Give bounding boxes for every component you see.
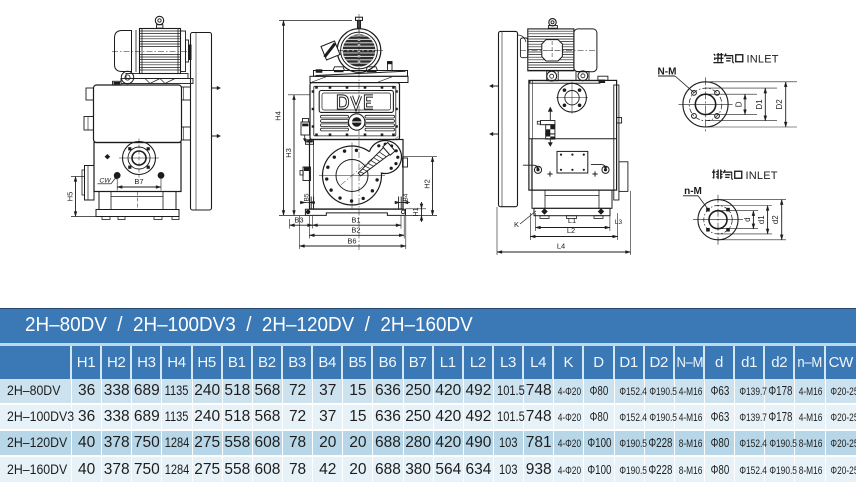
svg-text:H3: H3 (284, 148, 293, 158)
svg-text:d1: d1 (757, 215, 766, 224)
svg-text:D1: D1 (755, 99, 764, 110)
svg-text:D2: D2 (775, 99, 784, 110)
svg-text:B7: B7 (134, 177, 143, 186)
svg-text:INLET: INLET (747, 54, 779, 66)
svg-text:d2: d2 (771, 215, 780, 224)
svg-text:L2: L2 (567, 226, 575, 235)
svg-text:L3: L3 (615, 219, 623, 226)
svg-text:H4: H4 (274, 111, 283, 121)
svg-text:B2: B2 (351, 226, 360, 235)
svg-text:L1: L1 (568, 216, 576, 225)
svg-text:B1: B1 (351, 216, 360, 225)
svg-text:D: D (735, 101, 744, 107)
svg-text:L4: L4 (557, 242, 565, 251)
svg-text:H2: H2 (423, 179, 432, 189)
svg-text:B4: B4 (403, 193, 410, 201)
svg-text:K: K (514, 220, 519, 229)
svg-text:B5: B5 (304, 193, 311, 201)
svg-text:INLET: INLET (746, 170, 778, 182)
svg-text:H5: H5 (66, 192, 75, 202)
svg-text:d: d (743, 217, 752, 221)
svg-text:H1: H1 (413, 207, 420, 216)
svg-text:B3: B3 (294, 216, 303, 225)
svg-text:B6: B6 (347, 237, 356, 246)
